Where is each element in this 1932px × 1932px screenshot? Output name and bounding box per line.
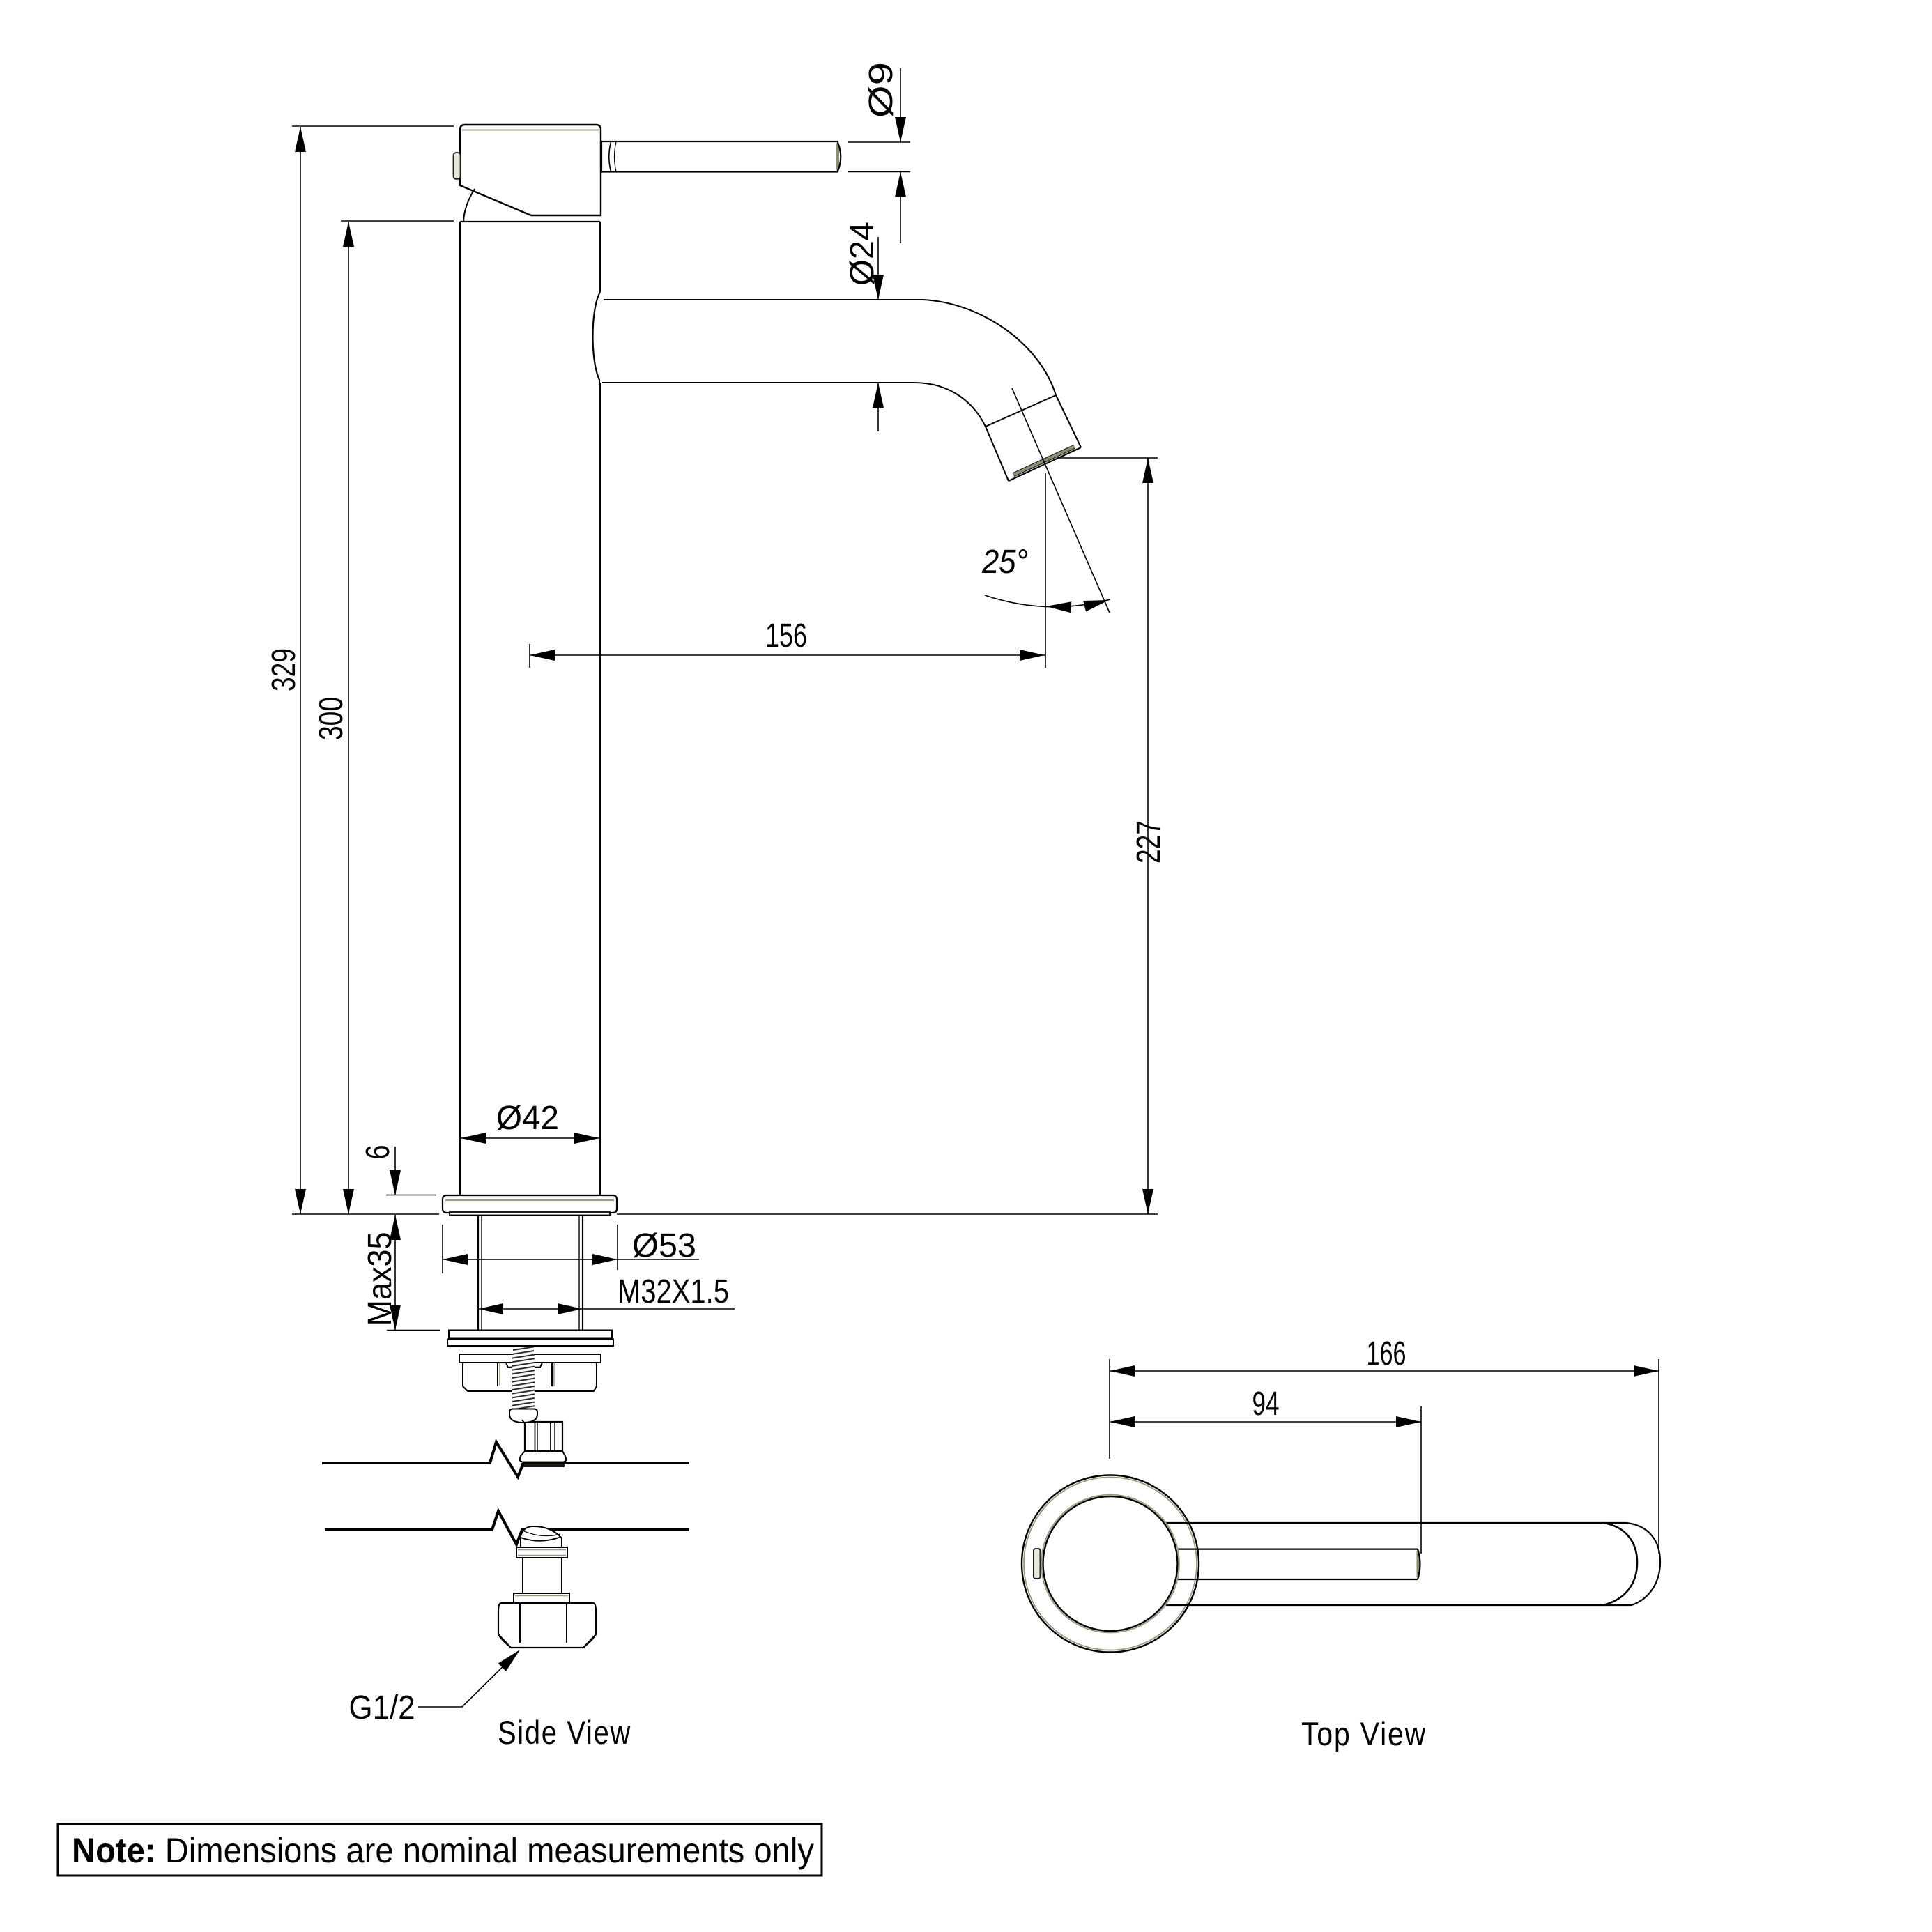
svg-text:166: 166 [1367, 1335, 1406, 1372]
svg-text:Note: Dimensions are nominal m: Note: Dimensions are nominal measurement… [72, 1831, 814, 1870]
svg-text:M32X1.5: M32X1.5 [618, 1273, 729, 1310]
svg-text:Side View: Side View [498, 1714, 631, 1751]
svg-text:Top View: Top View [1301, 1715, 1427, 1752]
svg-text:Ø9: Ø9 [863, 62, 900, 118]
svg-text:Ø42: Ø42 [496, 1100, 559, 1137]
svg-text:6: 6 [360, 1145, 397, 1160]
svg-text:Ø53: Ø53 [632, 1227, 696, 1264]
svg-text:156: 156 [765, 618, 807, 654]
svg-text:94: 94 [1252, 1386, 1280, 1423]
svg-text:G1/2: G1/2 [349, 1689, 415, 1726]
svg-text:300: 300 [313, 697, 350, 740]
svg-text:227: 227 [1130, 820, 1167, 864]
svg-text:329: 329 [266, 648, 302, 691]
svg-text:Max35: Max35 [362, 1232, 399, 1326]
svg-text:25°: 25° [981, 544, 1028, 581]
svg-text:Ø24: Ø24 [844, 222, 881, 286]
